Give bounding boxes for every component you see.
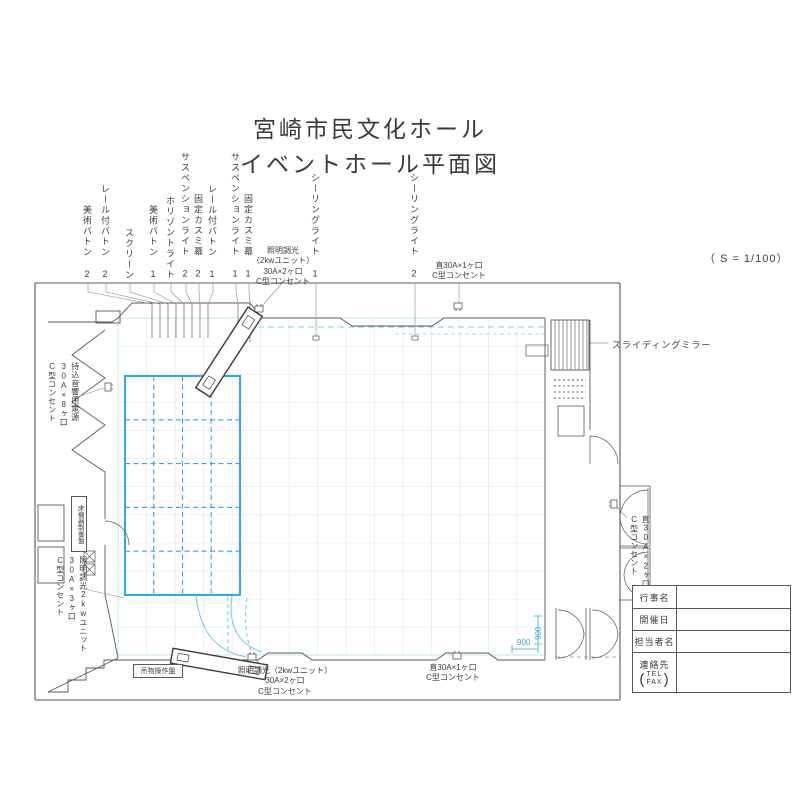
title-line-2: イベントホール平面図: [0, 147, 740, 182]
label-top-direct-outlet: 直30A×1ヶ口 C型コンセント: [432, 261, 486, 282]
label-bottom-direct-outlet: 直30A×1ヶ口 C型コンセント: [426, 663, 480, 684]
label-fixed-kasumi-1: 固定カスミ幕 1: [243, 194, 252, 280]
drawing-title: 宮崎市民文化ホール イベントホール平面図: [0, 112, 740, 181]
label-sliding-mirror: スライディングミラー: [612, 338, 711, 351]
row-contact-value: [677, 653, 790, 692]
row-event-name-value: [677, 586, 790, 609]
row-person-name-value: [677, 631, 790, 653]
label-rail-batten-1: レール付バトン 1: [207, 184, 216, 281]
title-line-1: 宮崎市民文化ホール: [0, 112, 740, 147]
label-bottom-dimmer-outlet: 照明調光（2kwユニット） 30A×2ヶ口 C型コンセント: [238, 666, 332, 697]
sliding-mirror: [551, 320, 608, 436]
dimension-900-horizontal: 900: [517, 638, 530, 647]
label-right-direct-outlet: 直30A×2ヶ口 C型コンセント: [628, 515, 651, 588]
label-suspension-light-2: サスペンションライト 2: [180, 152, 189, 280]
label-left-power-outlet: 持込音響用電源 30A×8ヶ口 C型コンセント: [46, 362, 81, 427]
row-event-name-label: 行事名: [633, 586, 677, 609]
label-fixed-kasumi-2: 固定カスミ幕 2: [193, 194, 202, 280]
label-rail-batten-2: レール付バトン 2: [100, 184, 109, 281]
label-suspension-light-1: サスペンションライト 1: [230, 152, 239, 280]
event-info-table: 行事名 開催日 担当者名 連絡先 ( TEL FAX ): [632, 585, 791, 693]
floor-control-panel: 床機器制御盤: [71, 496, 87, 552]
label-top-dimmer-outlet: 照明調光 （2kwユニット） 30A×2ヶ口 C型コンセント: [252, 246, 314, 288]
row-event-date-label: 開催日: [633, 609, 677, 631]
scale-note: （ S = 1/100）: [704, 250, 788, 266]
dimension-900-vertical: 900: [534, 627, 543, 640]
contact-tel: TEL: [646, 671, 662, 679]
label-left-dimmer-outlet: 照明調光2kwユニット 30A×3ヶ口 C型コンセント: [54, 556, 89, 653]
label-ceiling-light-2: シーリングライト 2: [409, 173, 418, 280]
rigging-control-panel: 吊物操作盤: [133, 664, 183, 678]
contact-fax: FAX: [646, 679, 662, 687]
label-horizont-light: ホリゾントライト: [165, 196, 174, 280]
row-contact-label: 連絡先 ( TEL FAX ): [633, 653, 677, 692]
row-person-name-label: 担当者名: [633, 631, 677, 653]
label-screen: スクリーン: [124, 228, 133, 281]
label-art-batten-2: 美術バトン 2: [82, 205, 91, 281]
row-event-date-value: [677, 609, 790, 631]
label-art-batten-1: 美術バトン 1: [148, 205, 157, 281]
